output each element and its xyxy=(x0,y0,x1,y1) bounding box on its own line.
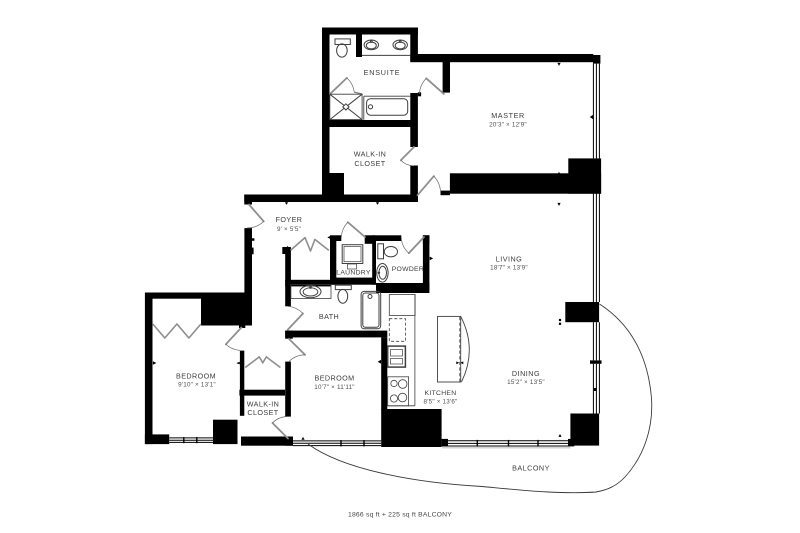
svg-text:ENSUITE: ENSUITE xyxy=(364,68,401,77)
svg-text:KITCHEN: KITCHEN xyxy=(425,390,457,397)
svg-text:10'7" × 11'11": 10'7" × 11'11" xyxy=(314,384,354,391)
svg-text:20'3" × 12'9": 20'3" × 12'9" xyxy=(489,122,527,129)
svg-text:LAUNDRY: LAUNDRY xyxy=(336,270,371,277)
svg-text:DINING: DINING xyxy=(512,369,540,378)
svg-text:CLOSET: CLOSET xyxy=(247,408,278,417)
svg-text:15'2" × 13'5": 15'2" × 13'5" xyxy=(507,379,545,386)
svg-text:18'7" × 13'9": 18'7" × 13'9" xyxy=(490,265,528,272)
svg-text:1866 sq ft + 225 sq ft BALCONY: 1866 sq ft + 225 sq ft BALCONY xyxy=(348,512,452,519)
svg-text:BEDROOM: BEDROOM xyxy=(176,372,216,381)
svg-text:FOYER: FOYER xyxy=(276,215,303,224)
svg-text:8'5" × 13'6": 8'5" × 13'6" xyxy=(424,399,458,406)
svg-text:9' × 5'5": 9' × 5'5" xyxy=(277,226,301,233)
svg-text:BALCONY: BALCONY xyxy=(512,464,550,473)
svg-text:LIVING: LIVING xyxy=(496,254,523,263)
svg-text:WALK-IN: WALK-IN xyxy=(354,150,386,159)
svg-text:CLOSET: CLOSET xyxy=(354,159,385,168)
svg-text:9'10" × 13'1": 9'10" × 13'1" xyxy=(178,381,216,388)
svg-text:POWDER: POWDER xyxy=(392,266,424,273)
svg-text:BEDROOM: BEDROOM xyxy=(315,374,355,383)
svg-text:BATH: BATH xyxy=(319,312,339,321)
svg-text:MASTER: MASTER xyxy=(491,111,525,120)
